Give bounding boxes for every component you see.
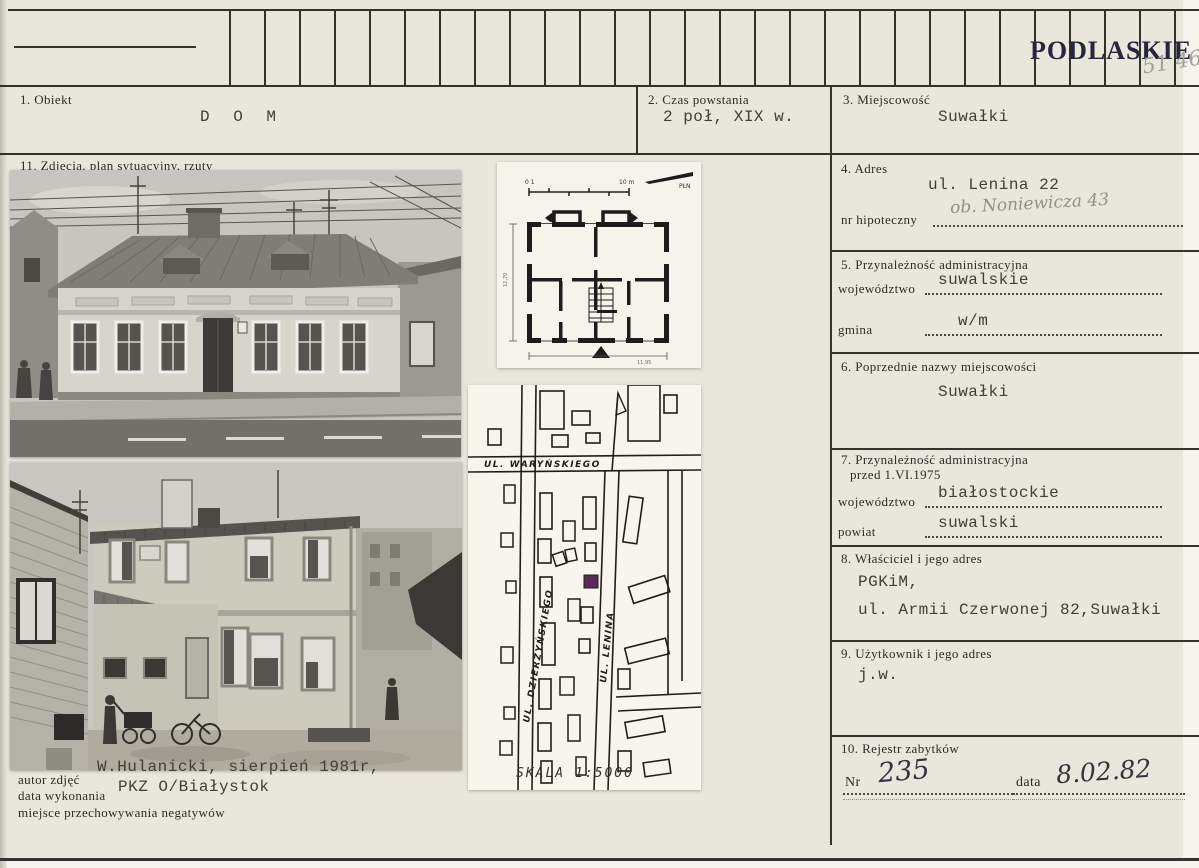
field9-label: 9. Użytkownik i jego adres [841, 646, 992, 662]
field7-label2: przed 1.VI.1975 [850, 467, 941, 483]
map-scale-caption: SKALA 1:5000 [516, 766, 634, 781]
nr-hipoteczny-line [933, 225, 1183, 227]
plan-dim-left: 12,70 [503, 273, 509, 287]
field-czas-value: 2 poł, XIX w. [663, 108, 794, 126]
field5-gmina-label: gmina [838, 322, 873, 338]
scan-edge-left [0, 0, 7, 868]
sep-6-7 [832, 448, 1199, 450]
field5-gmina-value: w/m [958, 312, 988, 330]
credit-date-label: data wykonania [18, 788, 106, 804]
field10-label: 10. Rejestr zabytków [841, 741, 959, 757]
field7-label: 7. Przynależność administracyjna [841, 452, 1028, 468]
field-obiekt-value: D O M [200, 108, 283, 126]
sep-5-6 [832, 352, 1199, 354]
field7-powiat-label: powiat [838, 524, 876, 540]
row1-bottom-rule [0, 153, 1199, 155]
field5-wojewodztwo-label: województwo [838, 281, 915, 297]
field10-date-value: 8.02.82 [1055, 754, 1152, 790]
header-mid-rule [14, 46, 196, 48]
field10-nr-line2 [843, 799, 1013, 800]
field-miejscowosc-value: Suwałki [938, 108, 1009, 126]
subject-building-marker [584, 575, 598, 588]
photo-courtyard-image [10, 462, 462, 770]
field-czas-label: 2. Czas powstania [648, 92, 749, 108]
field10-date-line [1013, 793, 1185, 795]
field-adres-value: ul. Lenina 22 [928, 176, 1059, 194]
field7-wojewodztwo-line [925, 506, 1162, 508]
field8-value2: ul. Armii Czerwonej 82,Suwałki [858, 601, 1161, 619]
credit-negatives-label: miejsce przechowywania negatywów [18, 805, 225, 821]
field7-powiat-value: suwalski [938, 514, 1019, 532]
floor-plan-sheet: 0 1 10 m PŁN [497, 162, 701, 368]
site-map-sheet: UL. WARYŃSKIEGO UL. DZIERŻYŃSKIEGO UL. L… [468, 385, 701, 790]
scan-edge-bottom [0, 861, 1199, 868]
field-miejscowosc-label: 3. Miejscowość [843, 92, 930, 108]
credit-workshop-value: PKZ O/Białystok [118, 778, 270, 796]
plan-scale-right: 10 m [619, 179, 635, 186]
credit-author-value: W.Hulanicki, sierpień 1981r, [97, 758, 380, 776]
field10-nr-line [843, 793, 1013, 795]
street-label-warynskiego: UL. WARYŃSKIEGO [484, 458, 601, 470]
floor-plan-drawing: 0 1 10 m PŁN [497, 162, 701, 368]
field5-wojewodztwo-line [925, 293, 1162, 295]
field5-wojewodztwo-value: suwalskie [938, 271, 1029, 289]
nr-hipoteczny-label: nr hipoteczny [841, 212, 917, 228]
sep-7-8 [832, 545, 1199, 547]
photo-street-facade [10, 170, 461, 457]
field6-label: 6. Poprzednie nazwy miejscowości [841, 359, 1036, 375]
header-bottom-rule [0, 85, 1199, 87]
field9-value: j.w. [858, 666, 898, 684]
sep-8-9 [832, 640, 1199, 642]
field7-wojewodztwo-label: województwo [838, 494, 915, 510]
sep-4-5 [832, 250, 1199, 252]
field7-wojewodztwo-value: białostockie [938, 484, 1059, 502]
field7-powiat-line [925, 536, 1162, 538]
field10-nr-value: 235 [877, 754, 931, 789]
sep-9-10 [832, 735, 1199, 737]
scan-edge-right [1183, 0, 1199, 868]
divider-f1-f2 [636, 86, 638, 153]
record-card: PODLASKIE 51 46 1. Obiekt D O M 2. Czas … [0, 0, 1199, 868]
field-obiekt-label: 1. Obiekt [20, 92, 72, 108]
card-bottom-rule [0, 858, 1199, 861]
field6-value: Suwałki [938, 383, 1009, 401]
field8-value1: PGKiM, [858, 573, 919, 591]
field5-gmina-line [925, 334, 1162, 336]
site-map-drawing: UL. WARYŃSKIEGO UL. DZIERŻYŃSKIEGO UL. L… [468, 385, 701, 790]
field-adres-handwritten: ob. Noniewicza 43 [950, 190, 1110, 218]
field10-nr-label: Nr [845, 775, 861, 791]
photo-street-facade-image [10, 170, 461, 457]
plan-dim-bottom: 11,95 [637, 360, 651, 366]
plan-north-label: PŁN [679, 183, 690, 190]
photo-courtyard [10, 462, 462, 770]
field8-label: 8. Właściciel i jego adres [841, 551, 982, 567]
field10-date-label: data [1016, 775, 1041, 791]
divider-left-right [830, 86, 832, 845]
credit-author-label: autor zdjęć [18, 772, 80, 788]
field-adres-label: 4. Adres [841, 161, 888, 177]
plan-scale-left: 0 1 [525, 179, 535, 186]
field10-date-line2 [1013, 799, 1185, 800]
